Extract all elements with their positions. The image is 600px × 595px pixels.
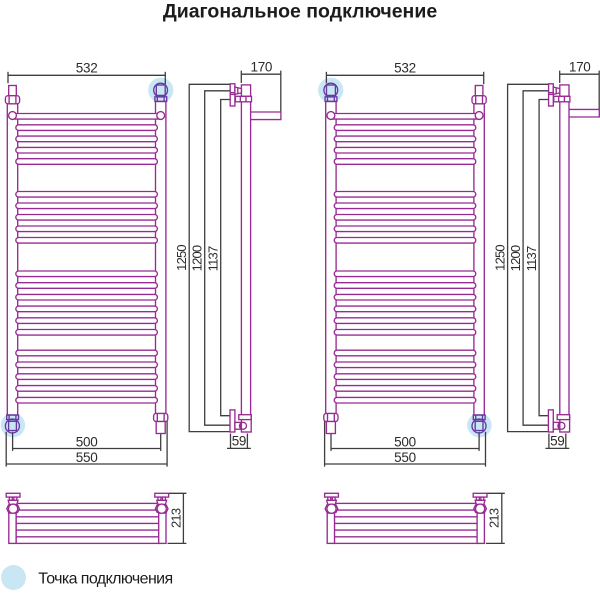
svg-text:213: 213: [168, 508, 183, 528]
svg-text:550: 550: [76, 450, 98, 465]
svg-text:59: 59: [550, 433, 564, 448]
svg-text:213: 213: [487, 508, 502, 528]
svg-text:1250: 1250: [492, 245, 507, 271]
svg-text:170: 170: [569, 60, 591, 75]
svg-text:170: 170: [250, 60, 272, 75]
svg-text:Точка подключения: Точка подключения: [38, 570, 172, 587]
svg-text:59: 59: [232, 433, 246, 448]
svg-text:1200: 1200: [190, 245, 205, 271]
svg-text:532: 532: [76, 61, 98, 76]
svg-text:1137: 1137: [206, 246, 221, 271]
svg-text:1137: 1137: [524, 246, 539, 271]
svg-text:550: 550: [394, 450, 416, 465]
svg-text:Диагональное подключение: Диагональное подключение: [163, 0, 437, 22]
svg-text:1250: 1250: [174, 245, 189, 271]
svg-text:500: 500: [394, 434, 416, 449]
svg-text:1200: 1200: [508, 245, 523, 271]
svg-text:532: 532: [394, 61, 416, 76]
svg-text:500: 500: [76, 434, 98, 449]
